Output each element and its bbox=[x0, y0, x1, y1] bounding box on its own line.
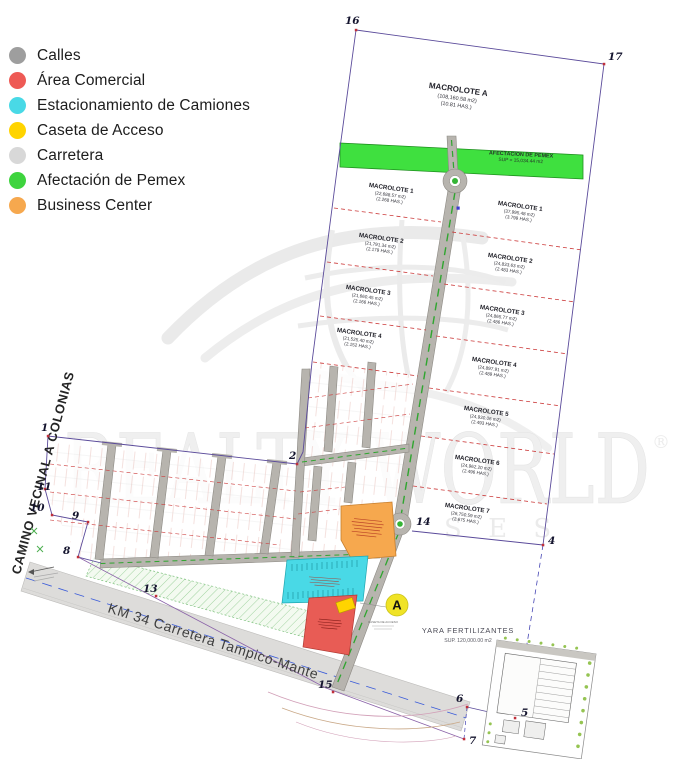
yara-warehouse-plant bbox=[482, 636, 596, 759]
point-label-8: 8 bbox=[63, 545, 71, 557]
legend-label: Calles bbox=[37, 47, 81, 65]
yara-area: SUP. 120,000.00 m2 bbox=[444, 638, 492, 644]
legend-item-caseta: Caseta de Acceso bbox=[9, 122, 250, 139]
calles-swatch-icon bbox=[9, 47, 26, 64]
point-label-2: 2 bbox=[288, 450, 296, 462]
legend-label: Carretera bbox=[37, 147, 103, 165]
legend-label: Área Comercial bbox=[37, 72, 145, 90]
point-label-1: 1 bbox=[41, 422, 48, 434]
legend-label: Caseta de Acceso bbox=[37, 122, 164, 140]
business-center-swatch-icon bbox=[9, 197, 26, 214]
point-label-4: 4 bbox=[548, 535, 555, 547]
legend-item-estacionamiento: Estacionamiento de Camiones bbox=[9, 97, 250, 114]
macrolote-a-label: MACROLOTE A (108,160.58 m2) (10.81 HAS.) bbox=[426, 81, 488, 113]
yara-name: YARA FERTILIZANTES bbox=[422, 626, 514, 635]
pemex-swatch-icon bbox=[9, 172, 26, 189]
estacionamiento-swatch-icon bbox=[9, 97, 26, 114]
point-label-5: 5 bbox=[521, 707, 528, 719]
roundabout-north bbox=[443, 169, 467, 193]
legend-item-business-center: Business Center bbox=[9, 197, 250, 214]
legend: Calles Área Comercial Estacionamiento de… bbox=[9, 47, 250, 214]
watermark-registered-icon: ® bbox=[652, 432, 670, 453]
legend-label: Afectación de Pemex bbox=[37, 172, 185, 190]
legend-label: Business Center bbox=[37, 197, 152, 215]
caseta-swatch-icon bbox=[9, 122, 26, 139]
point-label-7: 7 bbox=[469, 735, 477, 747]
legend-item-carretera: Carretera bbox=[9, 147, 250, 164]
carretera-swatch-icon bbox=[9, 147, 26, 164]
legend-item-pemex: Afectación de Pemex bbox=[9, 172, 250, 189]
business-center-block bbox=[341, 502, 396, 560]
access-marker-letter: A bbox=[392, 598, 402, 613]
point-label-9: 9 bbox=[72, 510, 80, 522]
site-plan-canvas: Calles Área Comercial Estacionamiento de… bbox=[0, 0, 700, 759]
point-label-6: 6 bbox=[456, 693, 464, 705]
legend-item-area-comercial: Área Comercial bbox=[9, 72, 250, 89]
point-label-17: 17 bbox=[608, 51, 623, 63]
point-label-14: 14 bbox=[416, 516, 431, 528]
point-label-11: 11 bbox=[37, 481, 52, 493]
legend-label: Estacionamiento de Camiones bbox=[37, 97, 250, 115]
legend-item-calles: Calles bbox=[9, 47, 250, 64]
point-label-16: 16 bbox=[345, 15, 360, 27]
point-label-13: 13 bbox=[143, 583, 158, 595]
point-label-10: 10 bbox=[30, 502, 45, 514]
point-label-15: 15 bbox=[318, 679, 333, 691]
access-marker-caption: CASETA DE ACCESO bbox=[368, 620, 399, 624]
area-comercial-swatch-icon bbox=[9, 72, 26, 89]
